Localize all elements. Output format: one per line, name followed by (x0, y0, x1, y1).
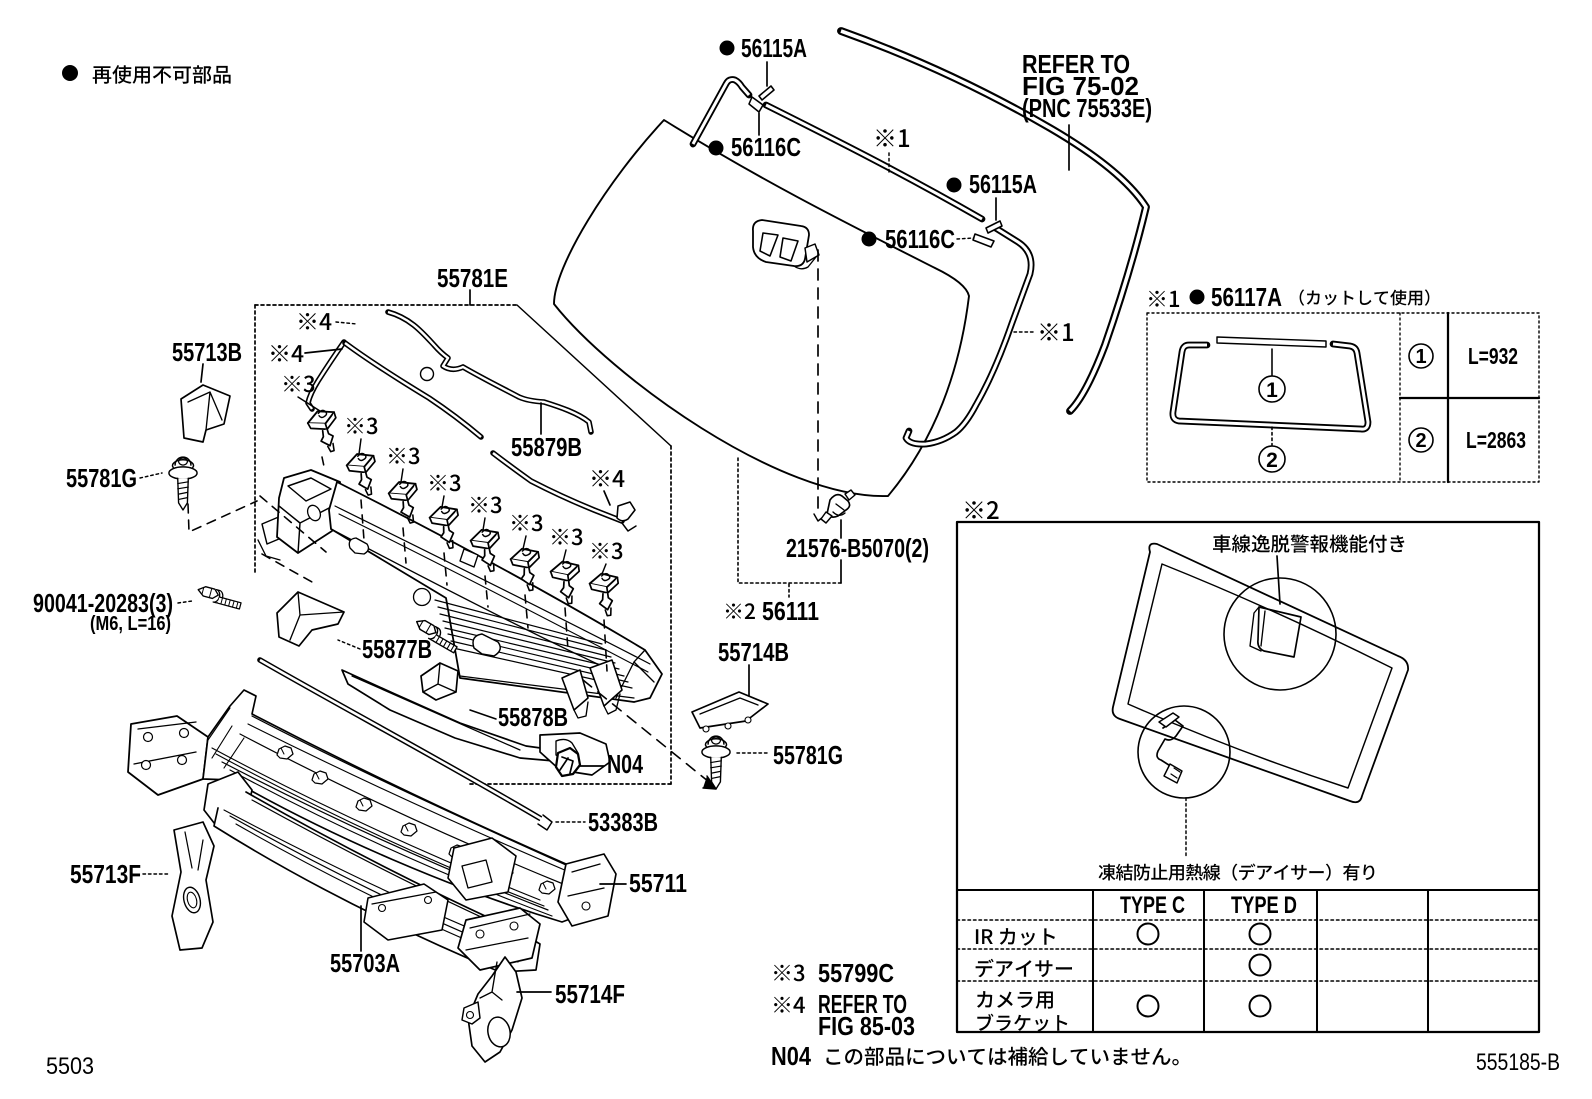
svg-text:1: 1 (1415, 346, 1426, 368)
svg-text:55879B: 55879B (511, 432, 582, 462)
svg-text:TYPE C: TYPE C (1120, 892, 1185, 919)
svg-text:55714B: 55714B (718, 637, 789, 667)
svg-text:55781G: 55781G (66, 463, 137, 493)
svg-text:55781G: 55781G (773, 740, 843, 770)
svg-text:(M6, L=16): (M6, L=16) (90, 613, 171, 635)
svg-text:55877B: 55877B (362, 634, 432, 664)
svg-text:56115A: 56115A (741, 33, 807, 63)
svg-text:55703A: 55703A (330, 948, 400, 978)
svg-text:53383B: 53383B (588, 807, 658, 837)
svg-text:2: 2 (1266, 449, 1278, 472)
svg-text:56111: 56111 (762, 596, 819, 626)
svg-text:L=2863: L=2863 (1466, 427, 1526, 453)
svg-text:56116C: 56116C (731, 132, 801, 162)
svg-text:TYPE D: TYPE D (1231, 892, 1297, 919)
svg-text:FIG 85-03: FIG 85-03 (818, 1011, 915, 1041)
svg-text:56117A: 56117A (1211, 282, 1282, 312)
svg-text:56116C: 56116C (885, 224, 955, 254)
svg-text:55714F: 55714F (555, 979, 625, 1009)
svg-text:L=932: L=932 (1468, 343, 1518, 369)
svg-text:56115A: 56115A (969, 169, 1037, 199)
svg-text:55878B: 55878B (498, 702, 568, 732)
svg-text:N04: N04 (607, 749, 643, 779)
svg-text:55713F: 55713F (70, 859, 141, 889)
svg-text:21576-B5070(2): 21576-B5070(2) (786, 533, 929, 563)
svg-text:2: 2 (1415, 430, 1426, 452)
svg-text:55711: 55711 (629, 868, 687, 898)
svg-text:(PNC 75533E): (PNC 75533E) (1022, 93, 1152, 123)
svg-text:55799C: 55799C (818, 958, 894, 988)
svg-text:55781E: 55781E (437, 263, 508, 293)
svg-text:55713B: 55713B (172, 337, 242, 367)
svg-text:555185-B: 555185-B (1476, 1049, 1560, 1076)
svg-text:1: 1 (1266, 379, 1278, 402)
svg-text:N04: N04 (771, 1041, 811, 1071)
svg-text:5503: 5503 (46, 1053, 94, 1080)
